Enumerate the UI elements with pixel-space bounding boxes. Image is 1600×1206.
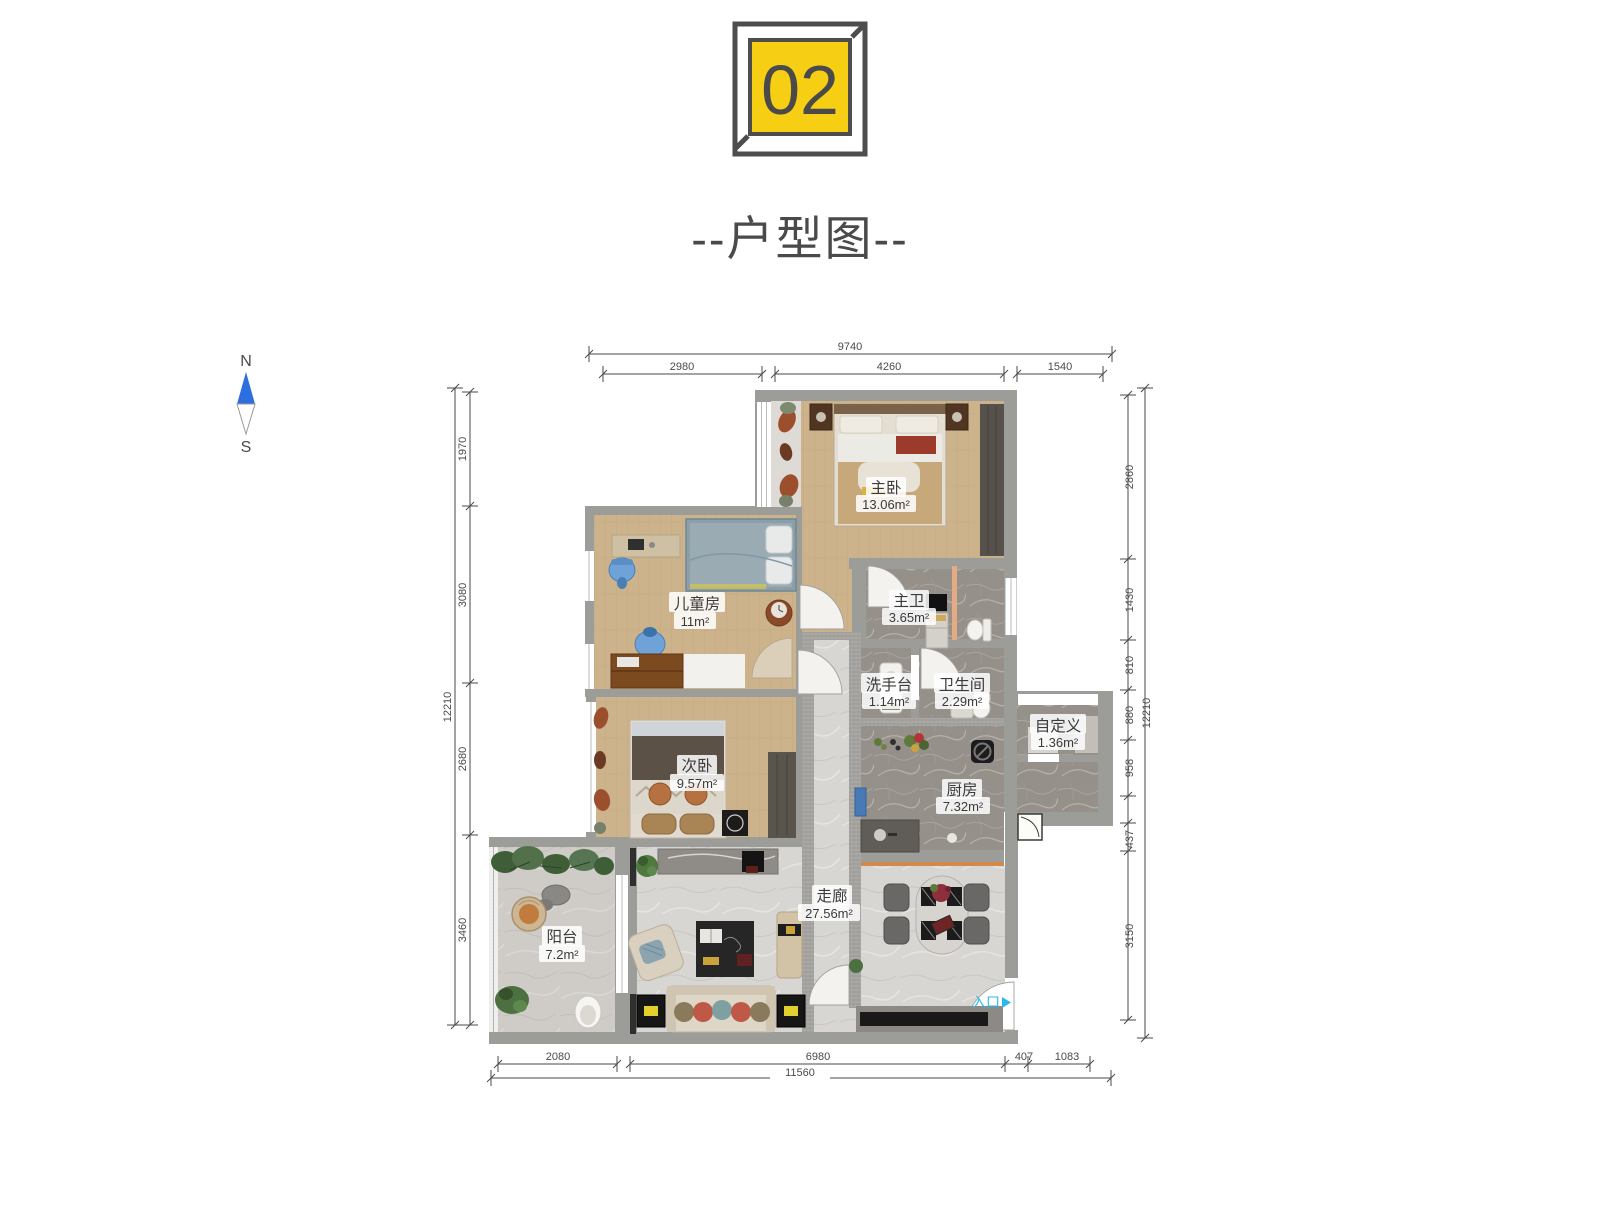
- svg-text:2860: 2860: [1124, 465, 1136, 489]
- svg-text:卫生间: 卫生间: [939, 676, 986, 694]
- svg-text:主卧: 主卧: [870, 479, 901, 497]
- svg-text:407: 407: [1015, 1051, 1033, 1063]
- svg-text:1430: 1430: [1124, 588, 1136, 612]
- svg-text:11m²: 11m²: [681, 614, 710, 629]
- svg-text:儿童房: 儿童房: [674, 594, 721, 613]
- svg-text:9.57m²: 9.57m²: [677, 776, 718, 791]
- svg-text:7.2m²: 7.2m²: [545, 947, 579, 962]
- svg-text:9740: 9740: [838, 341, 862, 353]
- svg-text:3460: 3460: [457, 918, 469, 942]
- svg-text:12210: 12210: [442, 692, 454, 723]
- svg-text:入口: 入口: [972, 994, 1000, 1010]
- svg-text:3150: 3150: [1124, 924, 1136, 948]
- svg-text:自定义: 自定义: [1035, 717, 1082, 735]
- svg-text:2.29m²: 2.29m²: [942, 694, 983, 709]
- svg-text:958: 958: [1124, 759, 1136, 777]
- svg-text:1540: 1540: [1048, 361, 1072, 373]
- svg-text:880: 880: [1124, 706, 1136, 724]
- svg-text:6980: 6980: [806, 1051, 830, 1063]
- svg-text:洗手台: 洗手台: [866, 676, 913, 694]
- svg-text:厨房: 厨房: [946, 781, 977, 799]
- svg-text:810: 810: [1124, 656, 1136, 674]
- svg-text:13.06m²: 13.06m²: [862, 497, 910, 512]
- svg-text:1970: 1970: [457, 437, 469, 461]
- svg-text:437: 437: [1124, 830, 1136, 848]
- svg-text:2080: 2080: [546, 1051, 570, 1063]
- svg-text:1083: 1083: [1055, 1051, 1079, 1063]
- svg-text:主卫: 主卫: [893, 592, 924, 610]
- svg-text:27.56m²: 27.56m²: [805, 906, 853, 921]
- svg-text:1.14m²: 1.14m²: [869, 694, 910, 709]
- svg-text:02: 02: [761, 51, 839, 129]
- svg-text:3.65m²: 3.65m²: [889, 610, 930, 625]
- svg-text:S: S: [241, 439, 252, 456]
- svg-text:3080: 3080: [457, 583, 469, 607]
- svg-text:N: N: [240, 353, 252, 370]
- svg-text:12210: 12210: [1141, 698, 1153, 729]
- svg-text:--户型图--: --户型图--: [691, 212, 909, 265]
- svg-text:2980: 2980: [670, 361, 694, 373]
- svg-text:次卧: 次卧: [681, 757, 712, 775]
- svg-text:阳台: 阳台: [546, 928, 577, 946]
- svg-text:2680: 2680: [457, 747, 469, 771]
- svg-text:7.32m²: 7.32m²: [943, 799, 984, 814]
- svg-text:11560: 11560: [785, 1067, 815, 1079]
- svg-text:1.36m²: 1.36m²: [1038, 735, 1079, 750]
- svg-text:4260: 4260: [877, 361, 901, 373]
- svg-text:走廊: 走廊: [816, 887, 847, 905]
